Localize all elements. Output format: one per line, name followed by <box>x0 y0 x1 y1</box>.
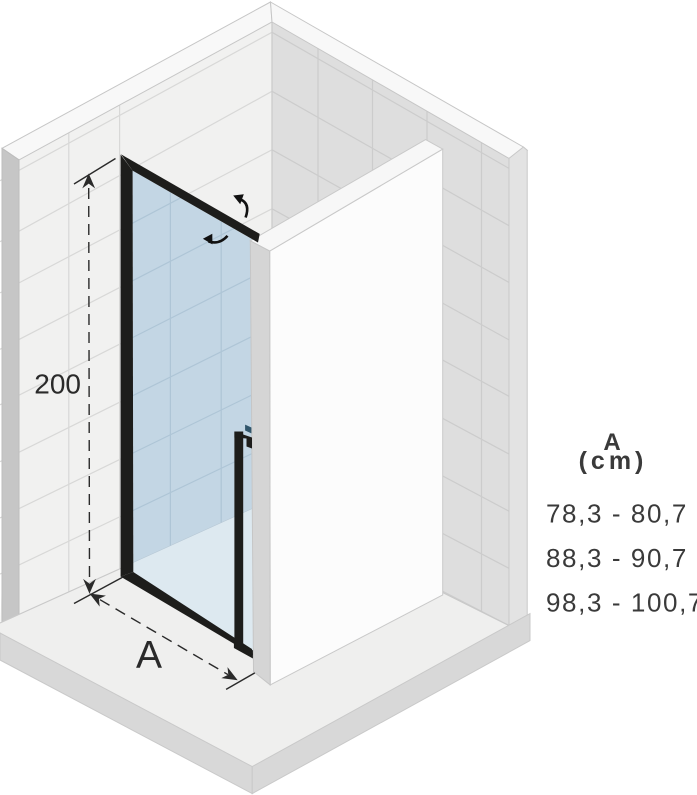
svg-text:(cm): (cm) <box>579 447 648 475</box>
svg-text:200: 200 <box>34 369 81 400</box>
svg-text:78,3 - 80,7: 78,3 - 80,7 <box>546 499 688 529</box>
svg-text:A: A <box>136 634 162 677</box>
svg-text:98,3 - 100,7: 98,3 - 100,7 <box>546 588 697 618</box>
svg-text:88,3 - 90,7: 88,3 - 90,7 <box>546 543 688 573</box>
